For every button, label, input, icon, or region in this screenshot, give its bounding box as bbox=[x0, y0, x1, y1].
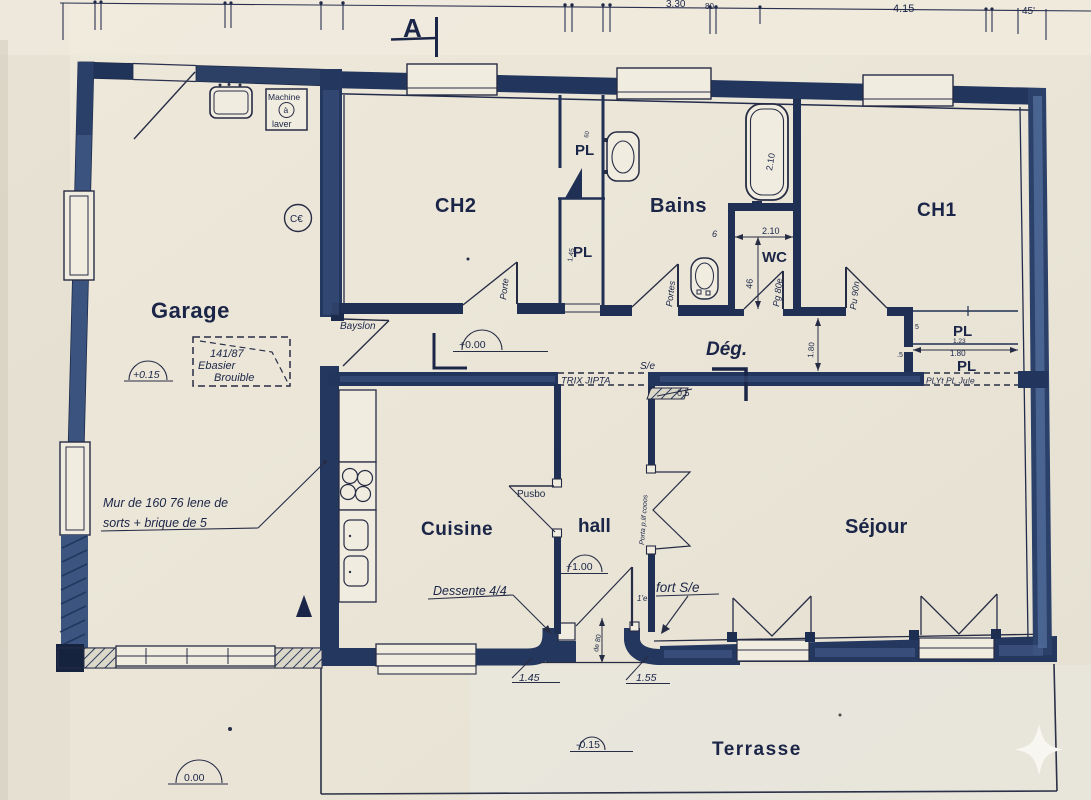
svg-text:C€: C€ bbox=[290, 214, 303, 225]
svg-text:Machine: Machine bbox=[268, 92, 300, 102]
svg-text:1.55: 1.55 bbox=[636, 672, 657, 684]
svg-text:hall: hall bbox=[578, 516, 611, 537]
svg-text:sorts + brique de 5: sorts + brique de 5 bbox=[103, 516, 207, 530]
svg-text:5: 5 bbox=[915, 324, 919, 331]
svg-text:Garage: Garage bbox=[151, 298, 230, 323]
svg-text:Mur de 160 76 lene de: Mur de 160 76 lene de bbox=[103, 496, 228, 510]
svg-text:4.15: 4.15 bbox=[893, 3, 914, 15]
svg-text:Bains: Bains bbox=[650, 195, 707, 217]
svg-text:2.10: 2.10 bbox=[762, 226, 780, 236]
svg-text:CH1: CH1 bbox=[917, 200, 957, 221]
svg-text:PL: PL bbox=[957, 358, 976, 375]
svg-text:CH2: CH2 bbox=[435, 195, 477, 217]
svg-text:1.23: 1.23 bbox=[953, 338, 966, 345]
svg-text:-0.15: -0.15 bbox=[576, 739, 600, 751]
svg-text:PLYt PL Ju!e: PLYt PL Ju!e bbox=[926, 376, 975, 386]
svg-text:141/87: 141/87 bbox=[210, 348, 245, 360]
svg-text:PL: PL bbox=[573, 244, 592, 261]
svg-text:PL: PL bbox=[575, 142, 594, 159]
svg-text:Dég.: Dég. bbox=[706, 339, 747, 360]
svg-text:.5: .5 bbox=[897, 352, 903, 359]
svg-text:+1.00: +1.00 bbox=[566, 561, 593, 573]
svg-text:1.80: 1.80 bbox=[806, 341, 816, 358]
svg-text:Ebasier: Ebasier bbox=[198, 360, 237, 372]
svg-text:6: 6 bbox=[712, 229, 717, 239]
svg-text:fort S/e: fort S/e bbox=[656, 580, 700, 595]
svg-text:Bayslon: Bayslon bbox=[340, 321, 376, 332]
svg-text:0.00: 0.00 bbox=[184, 772, 205, 784]
svg-text:+0.00: +0.00 bbox=[459, 339, 486, 351]
svg-text:3.30: 3.30 bbox=[666, 0, 686, 10]
svg-text:à: à bbox=[284, 105, 289, 115]
svg-text:TRIX JIPTA: TRIX JIPTA bbox=[561, 376, 610, 387]
svg-text:laver: laver bbox=[272, 119, 292, 129]
svg-text:Pusbo: Pusbo bbox=[517, 489, 546, 500]
svg-text:45': 45' bbox=[1022, 6, 1035, 17]
svg-text:+0.15: +0.15 bbox=[133, 369, 160, 381]
svg-text:S/e: S/e bbox=[640, 361, 655, 372]
svg-text:Brouible: Brouible bbox=[214, 372, 254, 384]
svg-text:80: 80 bbox=[705, 2, 714, 11]
svg-text:Cuisine: Cuisine bbox=[421, 519, 493, 540]
svg-text:1'e: 1'e bbox=[637, 594, 648, 603]
svg-text:Séjour: Séjour bbox=[845, 516, 907, 538]
svg-text:1.80: 1.80 bbox=[950, 349, 966, 358]
svg-text:Terrasse: Terrasse bbox=[712, 739, 802, 760]
svg-text:WC: WC bbox=[762, 249, 787, 266]
svg-text:46: 46 bbox=[744, 278, 755, 289]
